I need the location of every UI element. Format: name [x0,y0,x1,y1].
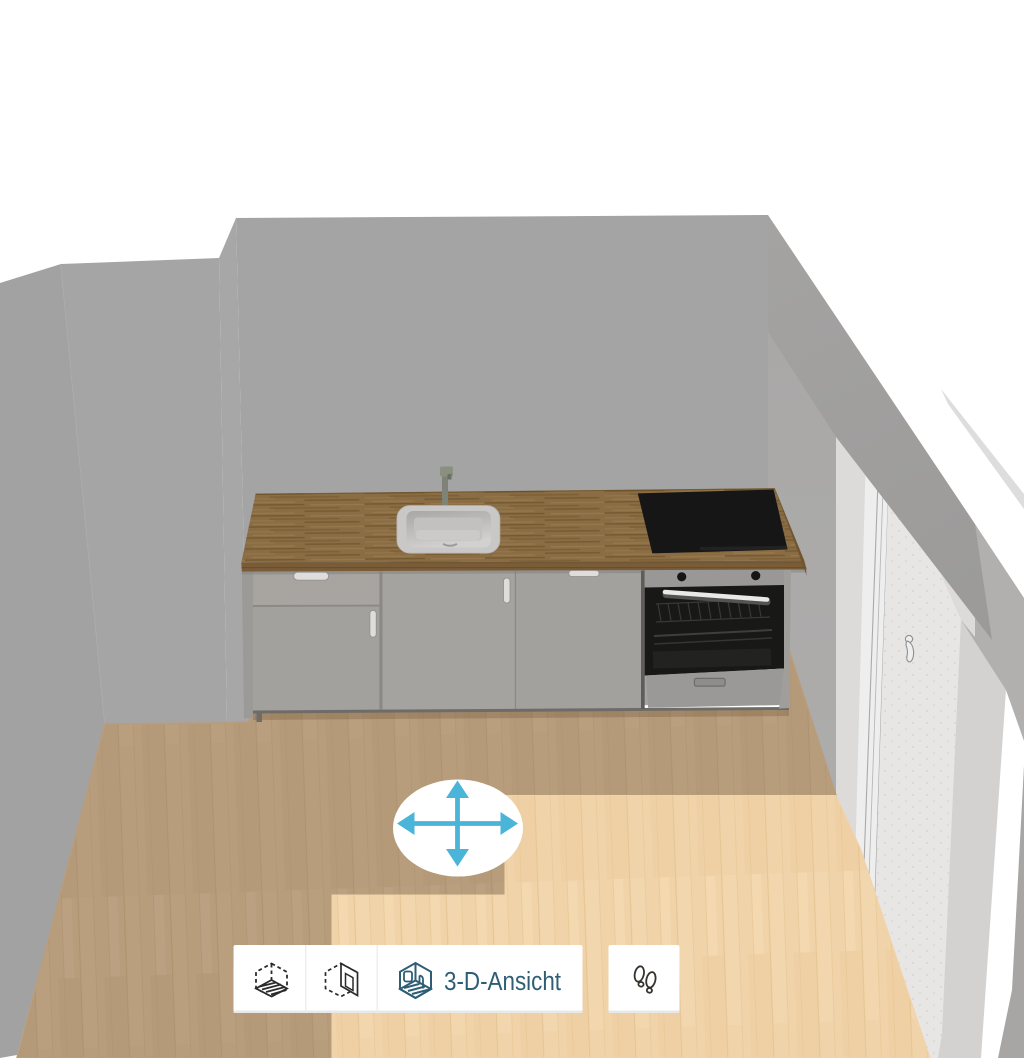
svg-text:3-D-Ansicht: 3-D-Ansicht [444,968,561,996]
